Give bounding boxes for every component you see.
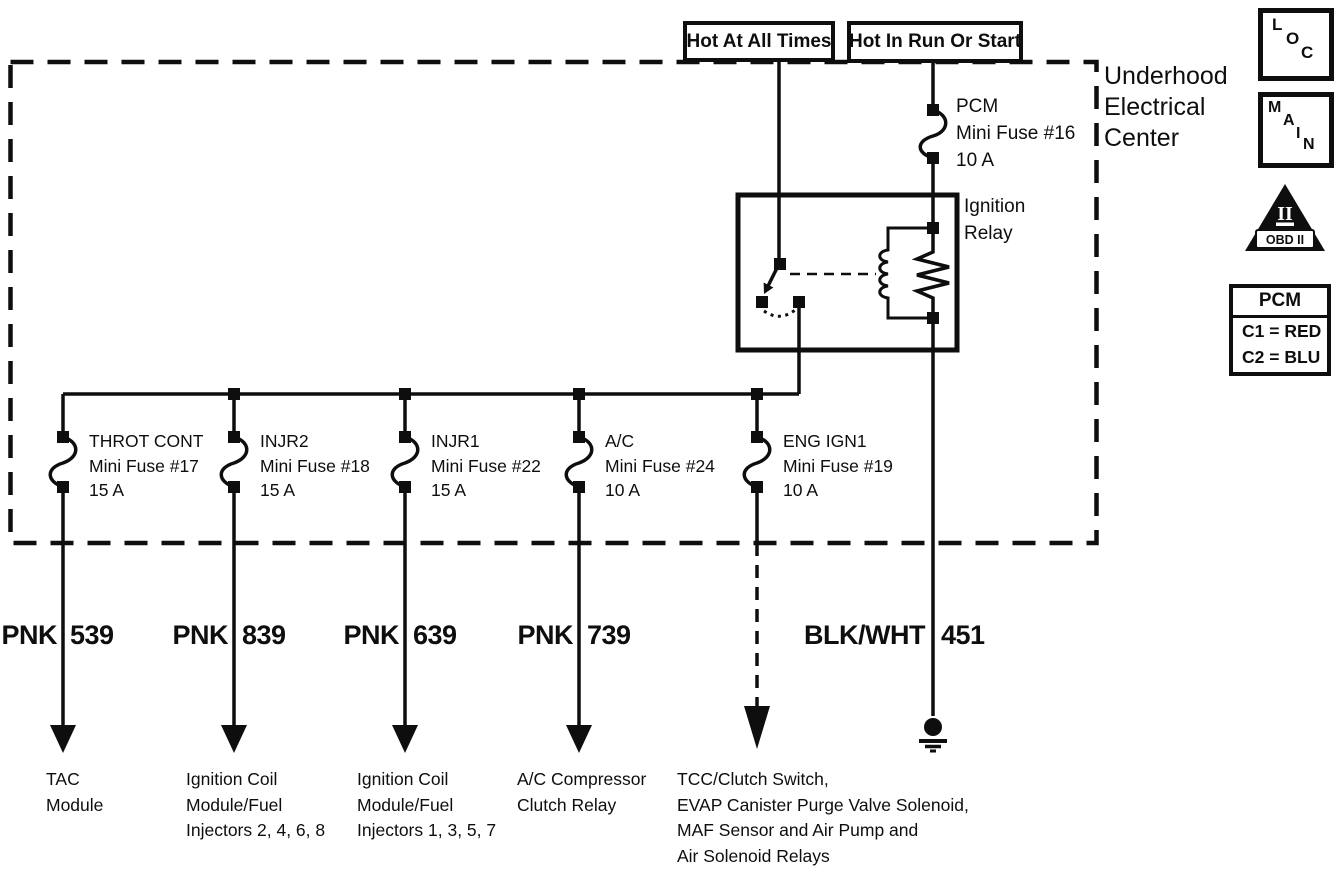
fuse-symbol bbox=[50, 437, 76, 487]
fuse-name: ENG IGN1 bbox=[783, 429, 893, 454]
ignition-relay-label: Ignition Relay bbox=[964, 193, 1025, 247]
wire-circuit-label: 451 bbox=[941, 620, 985, 650]
destination-line: Module bbox=[46, 793, 103, 819]
destination-tac-module: TAC Module bbox=[46, 767, 103, 818]
destination-line: TCC/Clutch Switch, bbox=[677, 767, 969, 793]
fuse-symbol bbox=[566, 437, 592, 487]
power-source-label: Hot At All Times bbox=[687, 31, 832, 53]
destination-tcc-evap-maf: TCC/Clutch Switch, EVAP Canister Purge V… bbox=[677, 767, 969, 869]
power-source-hot-at-all-times: Hot At All Times bbox=[683, 21, 835, 62]
main-letter: A bbox=[1283, 113, 1295, 129]
title-line: Center bbox=[1104, 123, 1228, 154]
destination-line: Ignition Coil bbox=[186, 767, 325, 793]
arrow-head bbox=[50, 725, 76, 753]
fuse-symbol bbox=[744, 437, 770, 487]
wire-color-label: PNK bbox=[329, 620, 399, 650]
loc-letter: C bbox=[1301, 44, 1313, 61]
main-letter: M bbox=[1268, 100, 1281, 116]
fuse-symbol bbox=[221, 437, 247, 487]
branch-eng-ign1 bbox=[744, 394, 770, 749]
destination-line: Clutch Relay bbox=[517, 793, 646, 819]
loc-legend-icon: L O C bbox=[1258, 8, 1334, 81]
relay-name-line: Ignition bbox=[964, 193, 1025, 220]
destination-line: Air Solenoid Relays bbox=[677, 844, 969, 870]
obd-label: OBD II bbox=[1266, 233, 1304, 247]
branch-injr1 bbox=[392, 394, 418, 753]
destination-injectors-even: Ignition Coil Module/Fuel Injectors 2, 4… bbox=[186, 767, 325, 844]
wire-circuit-label: 839 bbox=[242, 620, 286, 650]
fuse-rating: 10 A bbox=[783, 478, 893, 503]
pcm-fuse-label: PCM Mini Fuse #16 10 A bbox=[956, 93, 1075, 174]
main-legend-icon: M A I N bbox=[1258, 92, 1334, 168]
branch-ac bbox=[566, 394, 592, 753]
branch-injr2 bbox=[221, 394, 247, 753]
relay-name-line: Relay bbox=[964, 220, 1025, 247]
obd-numeral: II bbox=[1277, 203, 1293, 225]
fuse-name: PCM bbox=[956, 93, 1075, 120]
power-source-hot-in-run-or-start: Hot In Run Or Start bbox=[847, 21, 1023, 63]
destination-line: Module/Fuel bbox=[357, 793, 496, 819]
fuse-label-ac: A/C Mini Fuse #24 10 A bbox=[605, 429, 715, 503]
fuse-label-injr1: INJR1 Mini Fuse #22 15 A bbox=[431, 429, 541, 503]
fuse-label-eng-ign1: ENG IGN1 Mini Fuse #19 10 A bbox=[783, 429, 893, 503]
pcm-connector-legend: PCM C1 = RED C2 = BLU bbox=[1229, 284, 1331, 376]
arrow-head bbox=[566, 725, 592, 753]
page-title: Underhood Electrical Center bbox=[1104, 61, 1228, 154]
destination-line: A/C Compressor bbox=[517, 767, 646, 793]
wire-color-label: PNK bbox=[503, 620, 573, 650]
destination-line: TAC bbox=[46, 767, 103, 793]
wiring-diagram-page: Hot At All Times Hot In Run Or Start Und… bbox=[0, 0, 1344, 874]
title-line: Underhood bbox=[1104, 61, 1228, 92]
fuse-id: Mini Fuse #19 bbox=[783, 454, 893, 479]
wire-circuit-label: 539 bbox=[70, 620, 114, 650]
fuse-label-throt-cont: THROT CONT Mini Fuse #17 15 A bbox=[89, 429, 203, 503]
destination-line: Module/Fuel bbox=[186, 793, 325, 819]
fuse-name: INJR2 bbox=[260, 429, 370, 454]
fuse-symbol bbox=[392, 437, 418, 487]
wire-color-label: BLK/WHT bbox=[775, 620, 925, 650]
arrow-head bbox=[392, 725, 418, 753]
destination-line: MAF Sensor and Air Pump and bbox=[677, 818, 969, 844]
loc-letter: L bbox=[1272, 16, 1282, 33]
destination-line: Ignition Coil bbox=[357, 767, 496, 793]
fuse-rating: 15 A bbox=[260, 478, 370, 503]
pcm-connector-row: C2 = BLU bbox=[1233, 344, 1327, 370]
title-line: Electrical bbox=[1104, 92, 1228, 123]
loc-letter: O bbox=[1286, 30, 1299, 47]
fuse-name: THROT CONT bbox=[89, 429, 203, 454]
fuse-id: Mini Fuse #24 bbox=[605, 454, 715, 479]
fuse-label-injr2: INJR2 Mini Fuse #18 15 A bbox=[260, 429, 370, 503]
wire-color-label: PNK bbox=[0, 620, 57, 650]
destination-line: Injectors 2, 4, 6, 8 bbox=[186, 818, 325, 844]
destination-line: EVAP Canister Purge Valve Solenoid, bbox=[677, 793, 969, 819]
fuse-rating: 10 A bbox=[956, 147, 1075, 174]
wire-circuit-label: 739 bbox=[587, 620, 631, 650]
destination-ac-compressor: A/C Compressor Clutch Relay bbox=[517, 767, 646, 818]
destination-injectors-odd: Ignition Coil Module/Fuel Injectors 1, 3… bbox=[357, 767, 496, 844]
pcm-connector-row: C1 = RED bbox=[1233, 318, 1327, 344]
branch-throt-cont bbox=[50, 394, 76, 753]
ground-icon bbox=[919, 718, 947, 751]
fuse-id: Mini Fuse #18 bbox=[260, 454, 370, 479]
fuse-id: Mini Fuse #17 bbox=[89, 454, 203, 479]
fuse-rating: 10 A bbox=[605, 478, 715, 503]
main-letter: N bbox=[1303, 137, 1315, 153]
relay-switch bbox=[756, 258, 876, 316]
destination-line: Injectors 1, 3, 5, 7 bbox=[357, 818, 496, 844]
fuse-id: Mini Fuse #16 bbox=[956, 120, 1075, 147]
fuse-symbol-pcm bbox=[920, 104, 946, 164]
fuse-name: INJR1 bbox=[431, 429, 541, 454]
pcm-legend-title: PCM bbox=[1233, 288, 1327, 318]
fuse-id: Mini Fuse #22 bbox=[431, 454, 541, 479]
arrow-head bbox=[744, 706, 770, 749]
power-source-label: Hot In Run Or Start bbox=[849, 31, 1021, 53]
wire-circuit-label: 639 bbox=[413, 620, 457, 650]
arrow-head bbox=[221, 725, 247, 753]
wire-color-label: PNK bbox=[158, 620, 228, 650]
main-letter: I bbox=[1296, 126, 1300, 142]
fuse-name: A/C bbox=[605, 429, 715, 454]
obd-ii-icon: II OBD II bbox=[1243, 181, 1327, 255]
fuse-rating: 15 A bbox=[89, 478, 203, 503]
fuse-rating: 15 A bbox=[431, 478, 541, 503]
